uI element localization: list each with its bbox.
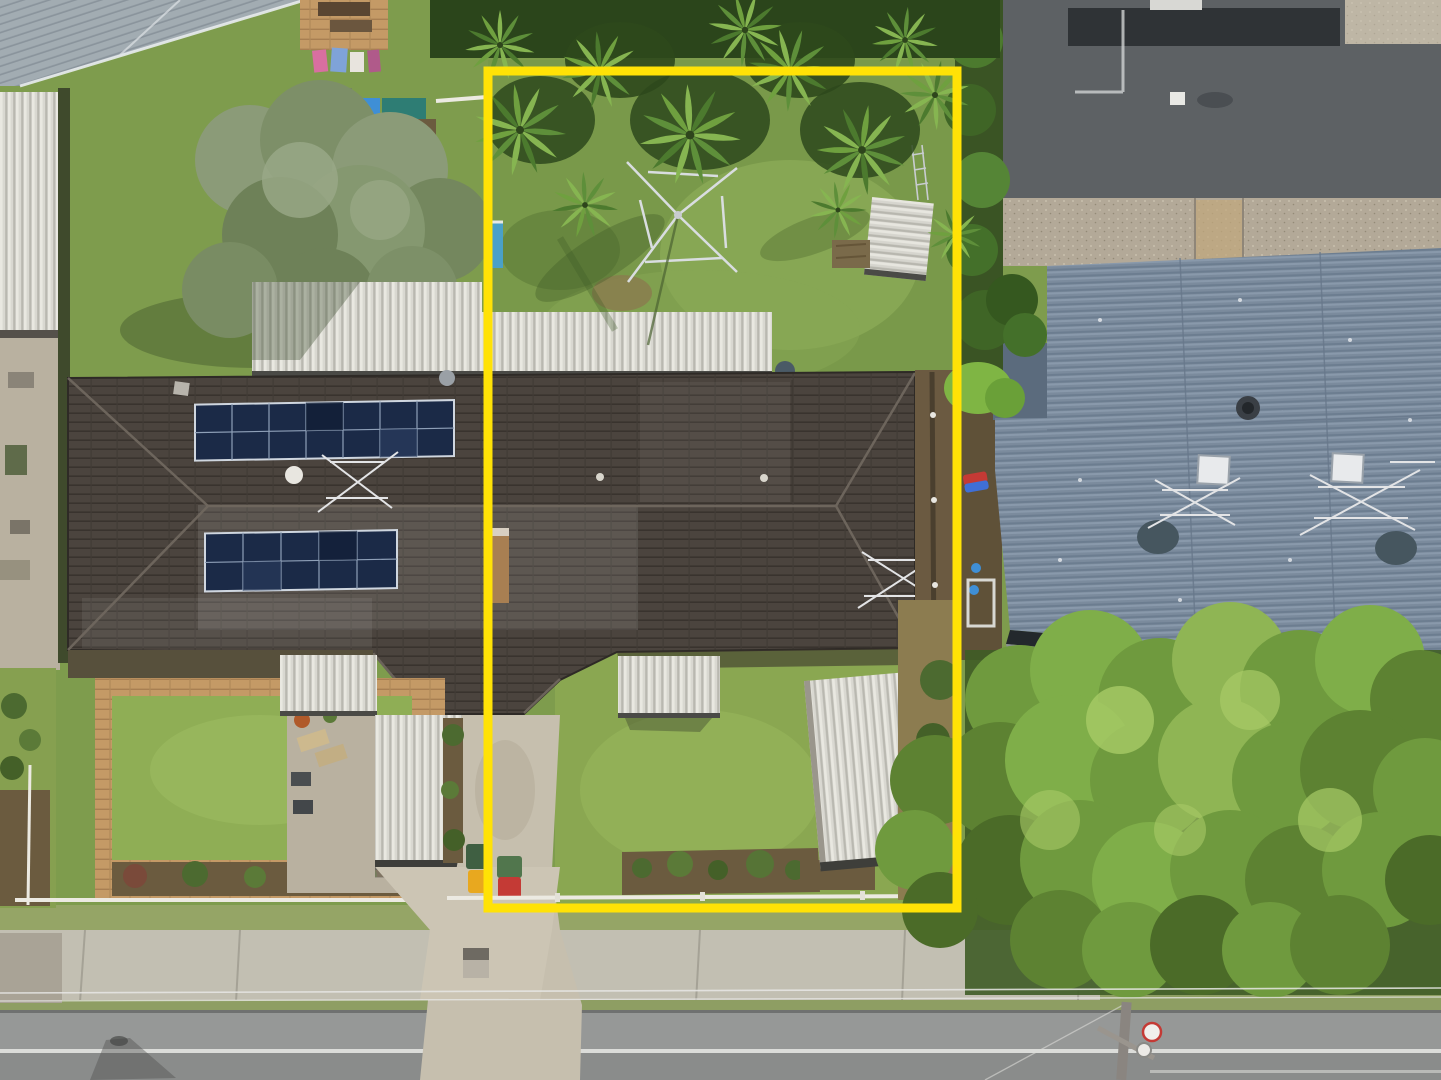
- solar-array-lower: [205, 530, 397, 591]
- skylight: [1331, 453, 1363, 483]
- garden-shed: [864, 197, 934, 281]
- satellite-dish: [1137, 520, 1179, 554]
- letterbox: [463, 948, 489, 978]
- solar-array-upper: [195, 400, 454, 461]
- parking-marker: [1170, 92, 1185, 105]
- street-sign: [1143, 1023, 1161, 1041]
- side-plant-strip: [441, 718, 465, 863]
- pipe-vent: [760, 474, 768, 482]
- aerial-photo: [0, 0, 1441, 1080]
- street-sign: [1137, 1043, 1151, 1057]
- outdoor-chair: [291, 772, 311, 786]
- outdoor-furniture: [318, 2, 370, 16]
- left-unit-awning: [280, 655, 377, 716]
- pipe-vent: [596, 473, 604, 481]
- blue-bucket: [969, 585, 979, 595]
- outdoor-chair: [293, 800, 313, 814]
- satellite-dish: [1375, 531, 1417, 565]
- roof-vent-ball: [285, 466, 303, 484]
- skylight: [1197, 455, 1229, 485]
- bin-green: [497, 856, 522, 878]
- small-dish: [439, 370, 455, 386]
- road-edge-line: [0, 1049, 1441, 1053]
- chimney: [491, 528, 509, 603]
- asphalt-parking-area: [985, 0, 1441, 198]
- bin-red: [498, 877, 521, 899]
- aerial-photo-canvas: [0, 0, 1441, 1080]
- far-left-fence: [28, 765, 30, 905]
- subject-entry-awning: [618, 656, 720, 732]
- blue-bucket: [971, 563, 981, 573]
- roof-vent-box: [173, 381, 190, 396]
- far-left-metal-roof: [0, 92, 58, 334]
